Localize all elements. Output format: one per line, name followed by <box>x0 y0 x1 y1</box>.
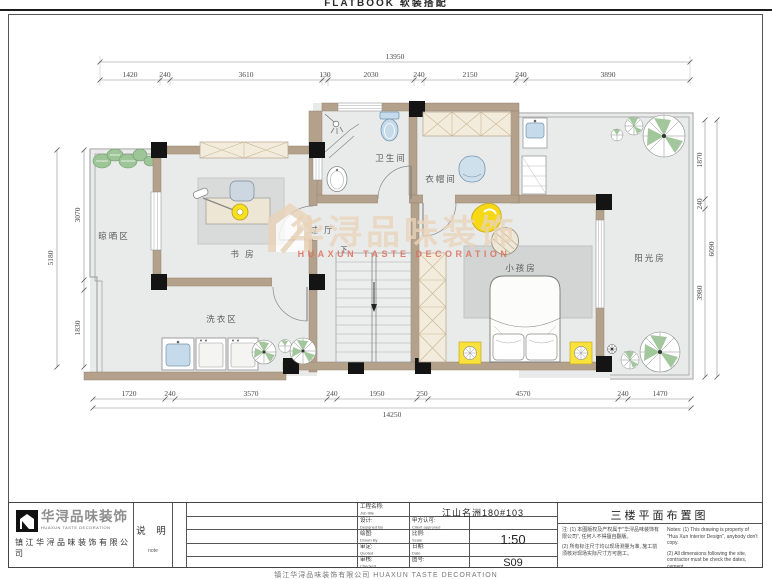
note-en: note <box>148 548 158 554</box>
label-drying-area: 晾晒区 <box>98 231 130 241</box>
note-cn: 说 明 <box>136 526 170 537</box>
dim-left-total: 5180 <box>46 250 55 265</box>
dim-bottom: 240 <box>164 389 176 398</box>
dim-bottom: 240 <box>326 389 338 398</box>
company-name: 镇江华浔品味装饰有限公司 <box>15 537 133 559</box>
note-cn-2: (2) 所有标注尺寸均以现场测量为准, 施工前须核对现场实际尺寸方可施工。 <box>562 544 662 557</box>
dim-top-total: 13950 <box>386 52 405 61</box>
pillow <box>493 334 524 360</box>
dim-top: 3890 <box>601 70 616 79</box>
tb-divider <box>186 503 187 567</box>
study-chair <box>230 181 254 201</box>
bottom-cropped-banner: 镇江华浔品味装饰有限公司 HUAXUN TASTE DECORATION <box>0 569 772 579</box>
tb-divider <box>357 503 358 567</box>
tb-divider <box>133 503 134 567</box>
dim-top: 3610 <box>239 70 254 79</box>
tb-row-label: 设计: Designed By <box>360 518 386 530</box>
toilet <box>380 112 399 141</box>
nightstand-right <box>570 342 592 364</box>
watermark-cn: 华浔品味装饰 <box>290 214 518 252</box>
dim-bottom: 1720 <box>122 389 137 398</box>
tb-label-en: Scale <box>412 538 423 543</box>
watermark-en: HUAXUN TASTE DECORATION <box>298 249 511 259</box>
note-en-2: (2) All dimensions following the site, c… <box>667 551 761 571</box>
dim-top: 2150 <box>463 70 478 79</box>
drawing-title: 三楼平面布置图 <box>557 507 762 523</box>
tb-label-en: Quoted <box>360 551 373 556</box>
label-laundry: 洗衣区 <box>206 314 238 324</box>
dim-right-total: 6090 <box>707 241 716 256</box>
label-sunroom: 阳光房 <box>634 253 666 263</box>
study-window <box>151 192 161 250</box>
dim-top: 240 <box>413 70 425 79</box>
bathroom-sink <box>327 167 347 192</box>
drawing-sheet: FLATBOOK 软装搭配 <box>0 0 772 579</box>
tb-label-cn: 工程名称: <box>360 504 384 511</box>
nook-cabinet <box>522 156 546 194</box>
bathroom-top-window <box>338 103 382 111</box>
sheet-number: S09 <box>469 557 557 569</box>
dim-top: 240 <box>159 70 171 79</box>
tb-label-cn: 绘图: <box>360 531 380 538</box>
tb-label-en: Date <box>412 551 423 556</box>
dim-bottom: 1470 <box>653 389 668 398</box>
tb-row-label: 比例: Scale <box>412 531 425 543</box>
desk-lamp-center <box>237 209 243 215</box>
tb-row-label: 图号: <box>412 557 425 564</box>
washing-machine <box>196 338 226 370</box>
dim-right: 1870 <box>695 152 704 167</box>
tb-rowline <box>557 523 762 524</box>
tb-label-cn: 图号: <box>412 557 425 564</box>
cloakroom-ottoman <box>459 156 485 182</box>
label-cloakroom: 衣帽间 <box>425 174 457 184</box>
tb-label-en: Designed By <box>360 525 383 530</box>
laundry-sink-unit <box>162 338 194 370</box>
floor-plan-canvas: 晾晒区 书 房 洗衣区 卫生间 衣帽间 过 厅 小孩房 阳光房 下 华浔品味装饰… <box>0 0 772 500</box>
dim-bottom: 4570 <box>516 389 531 398</box>
dim-left: 3070 <box>73 207 82 222</box>
kids-room-window <box>596 220 604 308</box>
logo-cn-text: 华浔品味装饰 <box>41 510 128 524</box>
study-cabinets <box>200 142 288 158</box>
logo-en-text: HUAXUN TASTE DECORATION <box>41 525 111 530</box>
scale-value: 1:50 <box>469 532 557 547</box>
tb-row-label: 甲方认可: Client approved <box>412 518 444 530</box>
dim-top: 1420 <box>123 70 138 79</box>
label-kids-room: 小孩房 <box>505 263 537 273</box>
note-cell: 说 明 note <box>135 521 171 557</box>
dim-right: 3980 <box>695 285 704 300</box>
bottom-banner-text: 镇江华浔品味装饰有限公司 HUAXUN TASTE DECORATION <box>0 570 772 579</box>
logo-house-icon <box>16 510 38 532</box>
tb-divider <box>172 503 173 567</box>
logo-mark <box>16 510 38 532</box>
wardrobe-row <box>423 112 511 136</box>
notes-cn: 注: (1) 本图版权及产权属于"华浔品味装饰有限公司", 任何人不得擅自翻版。… <box>562 527 662 557</box>
pillow <box>526 334 557 360</box>
tb-label-cn: 比例: <box>412 531 425 538</box>
tb-label-en: Drawn By <box>360 538 378 543</box>
dim-bottom-total: 14250 <box>383 410 402 419</box>
note-en-1: Notes: (1) This drawing is property of "… <box>667 527 761 547</box>
tb-label-cn: 日期: <box>412 544 425 551</box>
tb-label-en: Checked <box>360 564 376 569</box>
tb-label-en: Client approved <box>412 525 440 530</box>
dim-top: 2030 <box>364 70 379 79</box>
bed <box>490 276 560 362</box>
tb-row-label: 审核: Checked <box>360 557 378 569</box>
label-bathroom: 卫生间 <box>375 153 407 163</box>
stairs <box>336 253 411 362</box>
dim-top: 130 <box>319 70 331 79</box>
tb-label-cn: 甲方认可: <box>412 518 444 525</box>
note-cn-1: 注: (1) 本图版权及产权属于"华浔品味装饰有限公司", 任何人不得擅自翻版。 <box>562 527 662 540</box>
tb-label-cn: 设计: <box>360 518 386 525</box>
tb-row-label: 日期: Date <box>412 544 425 556</box>
utility-nook <box>522 118 547 194</box>
dim-bottom: 3570 <box>244 389 259 398</box>
nightstand-left <box>459 342 481 364</box>
dim-right: 240 <box>695 198 704 210</box>
company-logo: 华浔品味装饰 HUAXUN TASTE DECORATION 镇江华浔品味装饰有… <box>13 507 131 547</box>
tb-row-label: 审定: Quoted <box>360 544 375 556</box>
tb-label-cn: 审定: <box>360 544 375 551</box>
tb-row-label: 绘图: Drawn By <box>360 531 380 543</box>
dim-top: 240 <box>515 70 527 79</box>
label-study: 书 房 <box>230 249 255 259</box>
dim-left: 1830 <box>73 320 82 335</box>
dim-bottom: 1950 <box>370 389 385 398</box>
title-block: 华浔品味装饰 HUAXUN TASTE DECORATION 镇江华浔品味装饰有… <box>8 502 763 568</box>
dim-bottom: 240 <box>617 389 629 398</box>
dim-bottom: 250 <box>416 389 428 398</box>
notes-en: Notes: (1) This drawing is property of "… <box>667 527 761 570</box>
tb-row-label: 工程名称: Job title <box>360 504 384 516</box>
tb-label-en: Job title <box>360 511 381 516</box>
nook-basin <box>523 118 547 148</box>
kids-room-cabinet-strip <box>419 253 446 362</box>
